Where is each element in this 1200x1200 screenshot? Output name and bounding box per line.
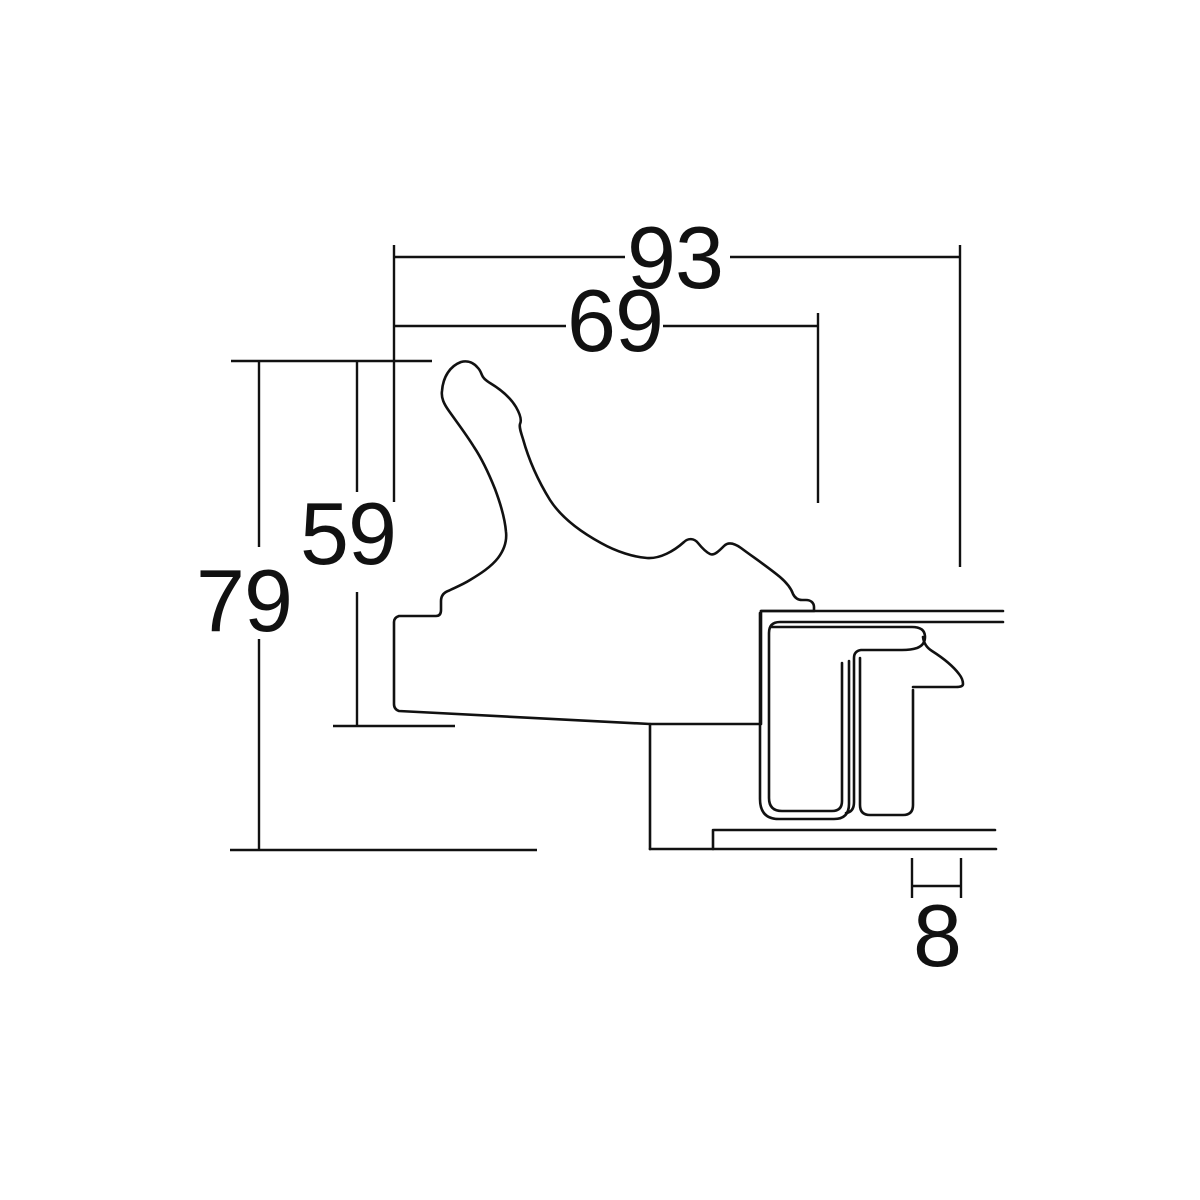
rabbet-assembly [760,611,1003,819]
dim-69-label: 69 [567,271,663,370]
back-structure [650,724,996,849]
stretcher-lip-step [913,637,963,687]
dim-79-label: 79 [196,551,292,650]
frame-moulding-cross-section: 93 69 59 79 8 [0,0,1200,1200]
technical-drawing-page: 93 69 59 79 8 [0,0,1200,1200]
stretcher-bar-outline [860,658,913,815]
moulding-profile-outline [394,361,814,724]
dim-8-label: 8 [913,886,961,985]
canvas-outer-fold [760,613,849,819]
moulding-profile [394,361,814,724]
dim-59-label: 59 [300,484,396,583]
